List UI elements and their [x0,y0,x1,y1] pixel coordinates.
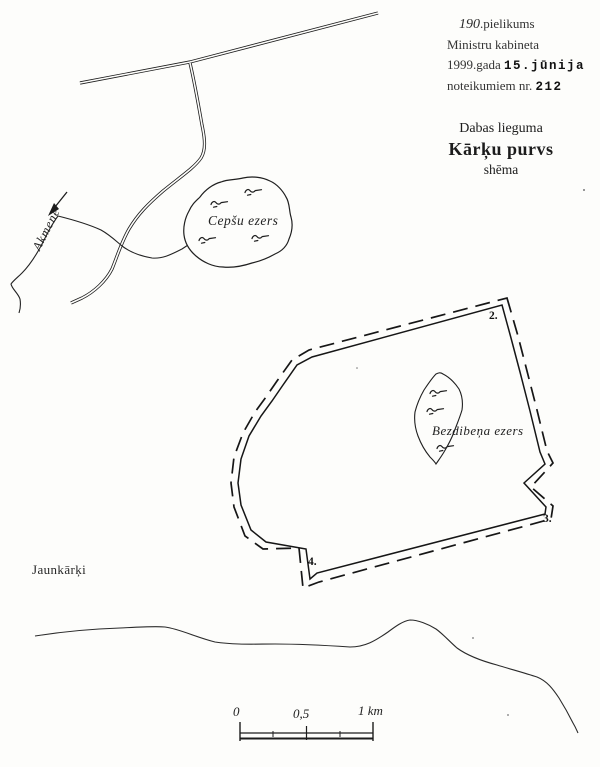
annex-date: 15.jūnija [504,59,585,73]
lake-bezdibena-label: Bezdibeņa ezers [432,423,524,439]
boundary-marker-2: 2. [489,310,498,322]
scan-speckles [356,189,585,716]
scale-bar [240,722,373,741]
annex-number: 190 [459,17,480,32]
annex-reg-number: 212 [535,80,562,94]
reserve-boundary-solid [238,305,546,579]
main-road [80,13,378,83]
scale-label-middle: 0,5 [293,706,309,722]
title-line-2: Kārķu purvs [442,138,560,161]
map-linework [0,0,600,767]
scale-label-start: 0 [233,704,240,720]
access-road [71,63,205,303]
boundary-marker-4: 4. [308,556,317,568]
annex-suffix: .pielikums [480,16,535,31]
title-line-3: shēma [442,161,560,178]
annex-reg-text: noteikumiem nr. [447,78,535,93]
annex-line-4: noteikumiem nr. 212 [447,76,600,97]
boundary-marker-3: 3. [543,513,552,525]
annex-note: 190.pielikums Ministru kabineta 1999.gad… [447,14,600,97]
annex-year-text: 1999.gada [447,57,504,72]
scale-label-end: 1 km [358,703,383,719]
scanned-map-page: 190.pielikums Ministru kabineta 1999.gad… [0,0,600,767]
title-line-1: Dabas lieguma [442,119,560,138]
annex-line-2: Ministru kabineta [447,35,600,55]
lake-bezdibena [415,373,463,464]
annex-line-3: 1999.gada 15.jūnija [447,55,600,76]
map-title: Dabas lieguma Kārķu purvs shēma [442,119,560,178]
settlement-label: Jaunkārķi [32,562,86,578]
lake-cepsu-label: Cepšu ezers [208,213,278,229]
annex-line-1: 190.pielikums [447,14,600,35]
